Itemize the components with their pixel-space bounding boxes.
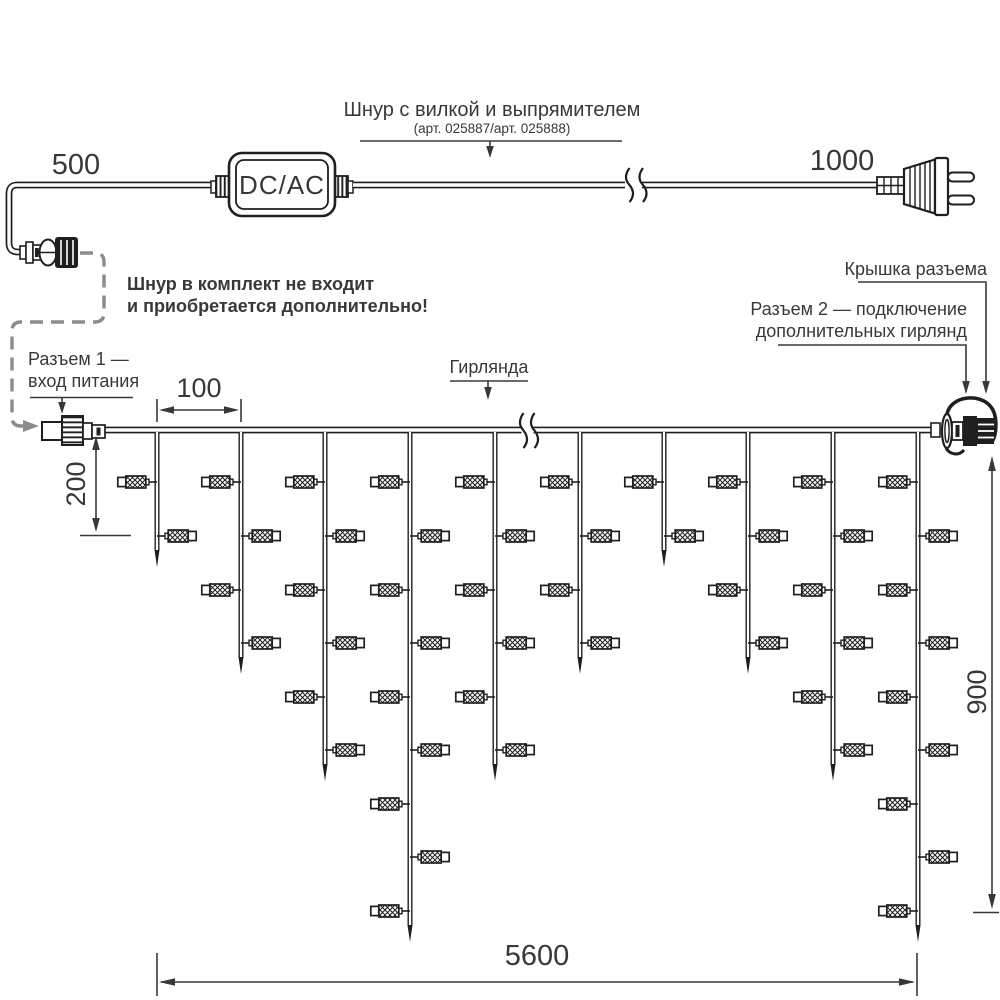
lamp-icon bbox=[410, 851, 449, 863]
lamp-icon bbox=[879, 905, 918, 917]
lamp-icon bbox=[879, 691, 918, 703]
note-line2: и приобретается дополнительно! bbox=[127, 296, 428, 316]
drop bbox=[541, 432, 619, 674]
dim-100-label: 100 bbox=[176, 373, 221, 403]
lamp-icon bbox=[241, 530, 280, 542]
garland-leader bbox=[450, 381, 528, 400]
mains-plug-icon bbox=[877, 158, 974, 215]
lamp-icon bbox=[794, 584, 833, 596]
garland-section: Разъем 1 — вход питания Гирлянда Крышка … bbox=[28, 259, 999, 996]
note-line1: Шнур в комплект не входит bbox=[127, 274, 374, 294]
not-included-dashed-path bbox=[12, 253, 104, 426]
lamp-icon bbox=[157, 530, 196, 542]
lamp-icon bbox=[794, 476, 833, 488]
dashed-arrowhead-icon bbox=[23, 420, 39, 432]
lamp-icon bbox=[918, 530, 957, 542]
lamp-icon bbox=[625, 476, 664, 488]
lamp-icon bbox=[794, 691, 833, 703]
lamp-icon bbox=[709, 476, 748, 488]
power-cord-left bbox=[9, 185, 218, 252]
lamp-icon bbox=[918, 637, 957, 649]
lamp-icon bbox=[202, 476, 241, 488]
power-cord-connector-icon bbox=[20, 237, 78, 268]
lamp-icon bbox=[371, 905, 410, 917]
diagram-page: DC/AC 500 1000 bbox=[0, 0, 1000, 1000]
drop bbox=[456, 432, 534, 781]
connector1-label-line1: Разъем 1 — bbox=[28, 349, 129, 369]
lamp-icon bbox=[371, 798, 410, 810]
lamp-icon bbox=[325, 530, 364, 542]
lamp-icon bbox=[286, 691, 325, 703]
lamp-icon bbox=[118, 476, 157, 488]
lamp-icon bbox=[286, 476, 325, 488]
lamp-icon bbox=[456, 584, 495, 596]
lamp-icon bbox=[748, 530, 787, 542]
drop bbox=[371, 432, 449, 942]
lamp-icon bbox=[580, 530, 619, 542]
lamp-icon bbox=[918, 744, 957, 756]
cap-label: Крышка разъема bbox=[845, 259, 988, 279]
leader-arrowhead-icon bbox=[962, 381, 970, 394]
lamp-icon bbox=[748, 637, 787, 649]
lamp-icon bbox=[495, 530, 534, 542]
lamp-icon bbox=[541, 476, 580, 488]
lamp-icon bbox=[541, 584, 580, 596]
leader-arrowhead-icon bbox=[982, 381, 990, 394]
dim-900-label: 900 bbox=[962, 669, 992, 714]
dim-5600-label: 5600 bbox=[505, 940, 570, 972]
lamp-icon bbox=[664, 530, 703, 542]
connector2-label-line2: дополнительных гирлянд bbox=[756, 321, 968, 341]
drop bbox=[286, 432, 364, 781]
lamp-icon bbox=[495, 637, 534, 649]
lamp-icon bbox=[202, 584, 241, 596]
connector1-label-line2: вход питания bbox=[28, 371, 139, 391]
lamp-icon bbox=[833, 637, 872, 649]
connector2-label-line1: Разъем 2 — подключение bbox=[750, 299, 967, 319]
converter-label: DC/AC bbox=[239, 170, 325, 200]
lamp-icon bbox=[879, 476, 918, 488]
lamp-icon bbox=[456, 691, 495, 703]
drop bbox=[625, 432, 703, 567]
power-cord-section: DC/AC 500 1000 bbox=[9, 99, 974, 432]
cord-break-icon bbox=[625, 168, 647, 202]
lamp-icon bbox=[580, 637, 619, 649]
cord-title: Шнур с вилкой и выпрямителем bbox=[344, 99, 641, 121]
lamp-icon bbox=[325, 637, 364, 649]
dim-1000-label: 1000 bbox=[810, 145, 875, 177]
converter-right-pin bbox=[348, 181, 353, 193]
lamp-icon bbox=[410, 637, 449, 649]
lamp-icon bbox=[879, 584, 918, 596]
lamp-icon bbox=[410, 744, 449, 756]
dim-200-label: 200 bbox=[61, 461, 91, 506]
cord-title-leader bbox=[360, 141, 622, 158]
leader-arrowhead-icon bbox=[484, 387, 492, 400]
connector2-leader bbox=[778, 345, 970, 394]
wire-break-icon bbox=[520, 413, 538, 448]
garland-label: Гирлянда bbox=[450, 357, 530, 377]
drop bbox=[709, 432, 787, 674]
lamp-icon bbox=[918, 851, 957, 863]
lamp-icon bbox=[879, 798, 918, 810]
lamp-icon bbox=[371, 584, 410, 596]
lamp-icon bbox=[286, 584, 325, 596]
cord-subtitle: (арт. 025887/арт. 025888) bbox=[414, 121, 571, 136]
garland-drops bbox=[118, 432, 957, 942]
lamp-icon bbox=[495, 744, 534, 756]
leader-arrowhead-icon bbox=[58, 402, 66, 414]
connector1-leader bbox=[30, 398, 133, 415]
lamp-icon bbox=[833, 744, 872, 756]
drop bbox=[202, 432, 280, 674]
lamp-icon bbox=[241, 637, 280, 649]
dc-ac-converter: DC/AC bbox=[211, 153, 353, 216]
lamp-icon bbox=[371, 476, 410, 488]
lamp-icon bbox=[371, 691, 410, 703]
garland-scheme-diagram: DC/AC 500 1000 bbox=[0, 0, 1000, 1000]
lamp-icon bbox=[833, 530, 872, 542]
dim-500-label: 500 bbox=[52, 149, 100, 181]
drop bbox=[794, 432, 872, 781]
connector2-icon bbox=[931, 398, 996, 454]
lamp-icon bbox=[456, 476, 495, 488]
lamp-icon bbox=[410, 530, 449, 542]
lamp-icon bbox=[325, 744, 364, 756]
leader-arrowhead-icon bbox=[486, 146, 494, 158]
drop bbox=[879, 432, 957, 942]
lamp-icon bbox=[709, 584, 748, 596]
drop bbox=[118, 432, 196, 567]
